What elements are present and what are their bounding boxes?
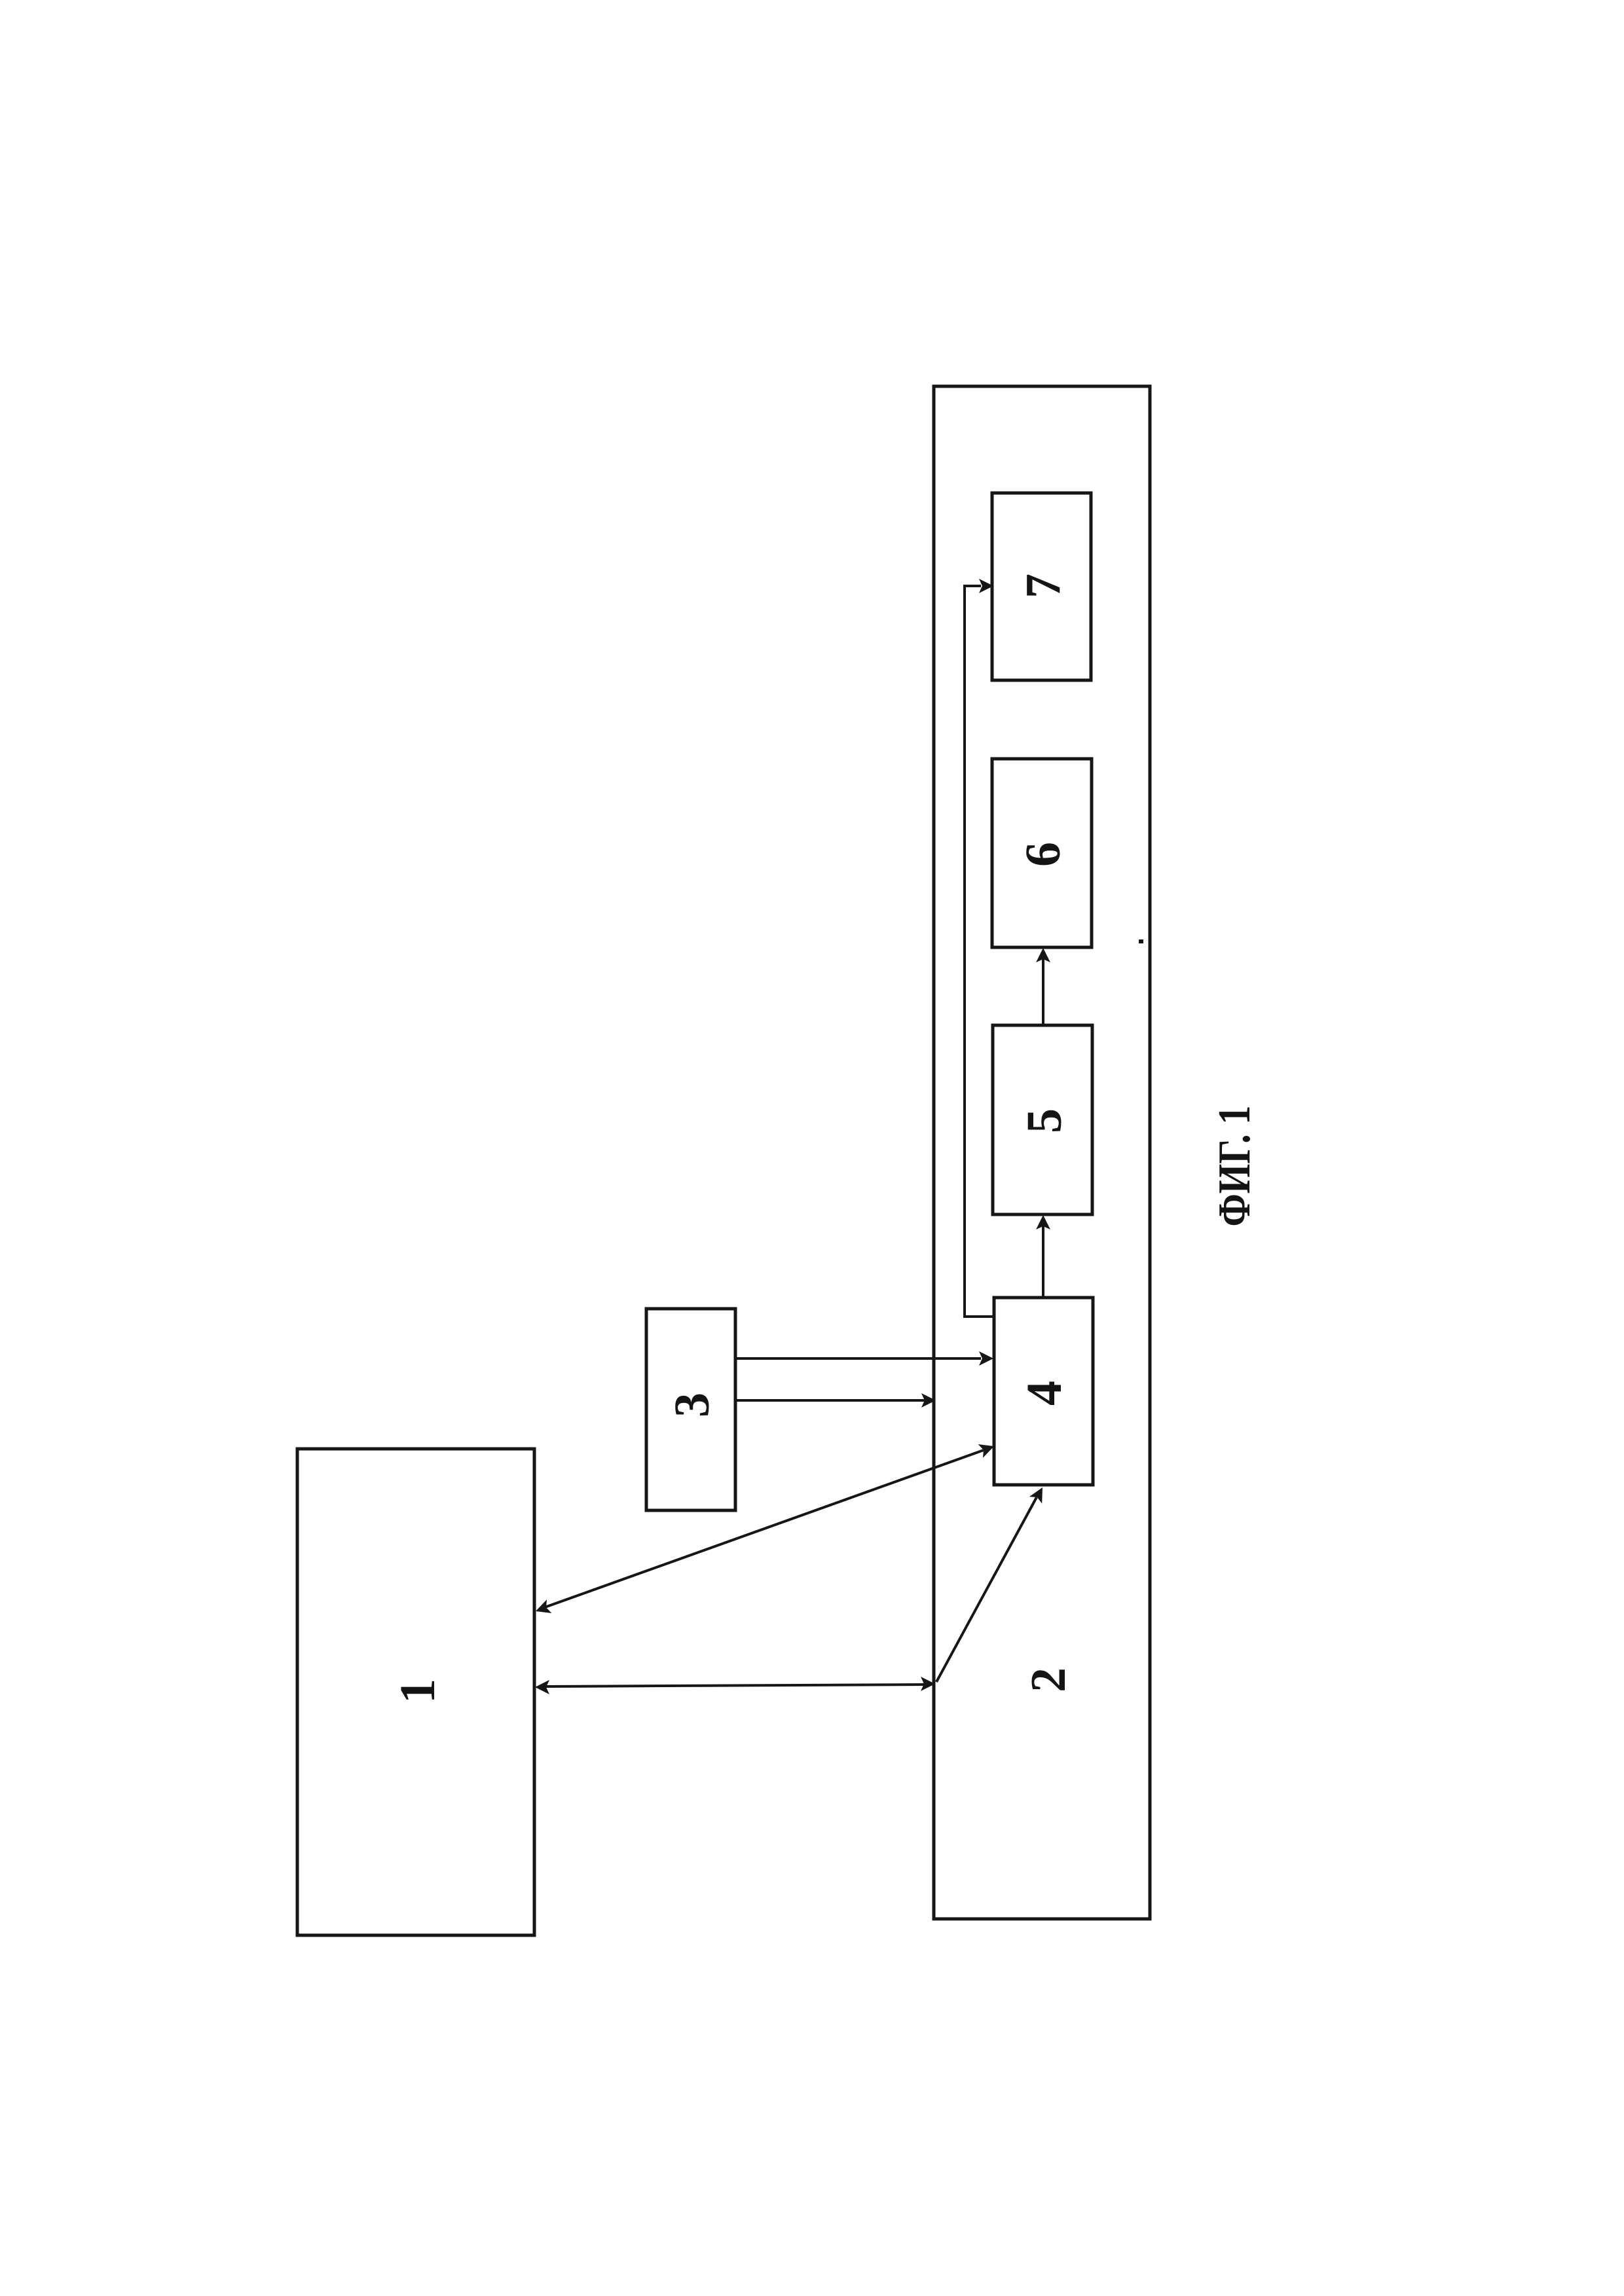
- svg-text:3: 3: [665, 1393, 720, 1417]
- svg-text:6: 6: [1016, 842, 1071, 867]
- svg-text:2: 2: [1021, 1667, 1076, 1692]
- svg-text:5: 5: [1017, 1108, 1072, 1133]
- svg-text:4: 4: [1017, 1381, 1072, 1406]
- svg-text:ФИГ. 1: ФИГ. 1: [1209, 1106, 1260, 1227]
- svg-text:1: 1: [390, 1679, 445, 1704]
- svg-text:7: 7: [1016, 574, 1071, 598]
